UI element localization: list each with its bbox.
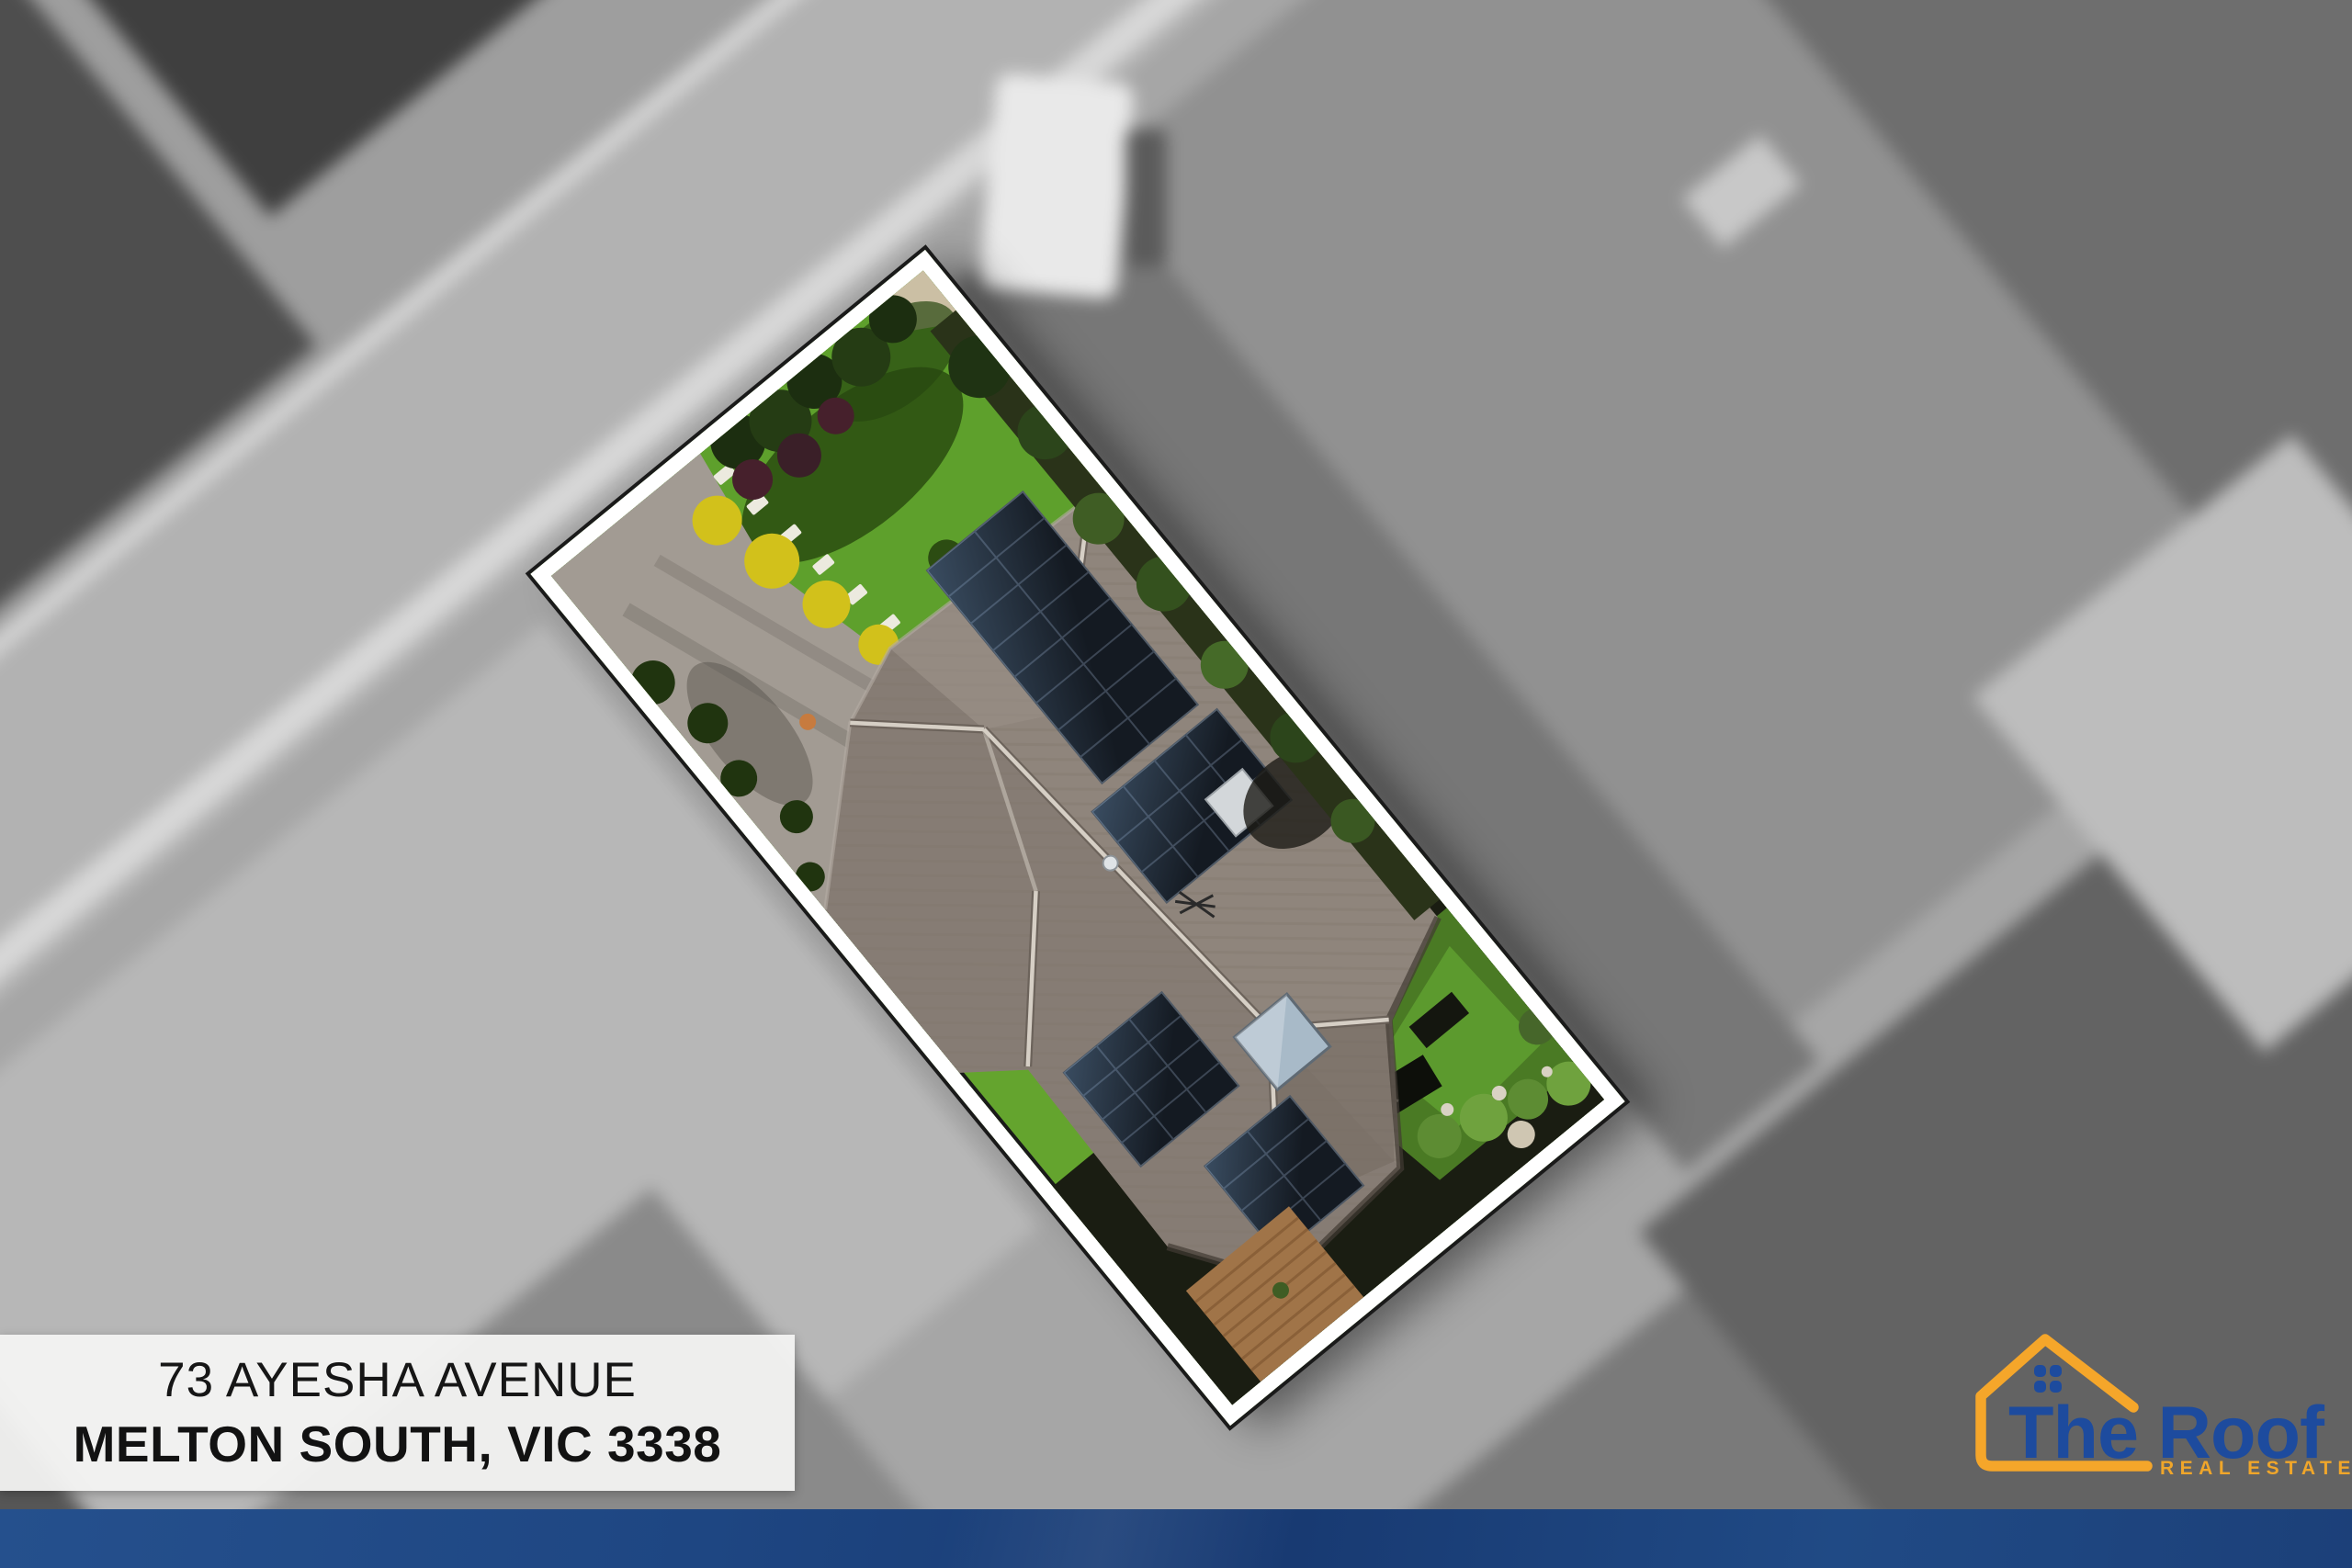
aerial-property-marketing-image: 73 AYESHA AVENUE MELTON SOUTH, VIC 3338 … [0, 0, 2352, 1568]
logo-tagline: REAL ESTATE [2160, 1459, 2352, 1478]
bg-parked-van [978, 73, 1135, 299]
bg-van-shadow [1125, 129, 1167, 266]
address-street: 73 AYESHA AVENUE [158, 1349, 637, 1413]
address-card: 73 AYESHA AVENUE MELTON SOUTH, VIC 3338 [0, 1335, 795, 1491]
bottom-brand-bar [0, 1509, 2352, 1568]
address-suburb: MELTON SOUTH, VIC 3338 [73, 1413, 722, 1476]
agency-logo: The Roof REAL ESTATE [1957, 1321, 2334, 1486]
window-dots-icon [2034, 1365, 2062, 1393]
